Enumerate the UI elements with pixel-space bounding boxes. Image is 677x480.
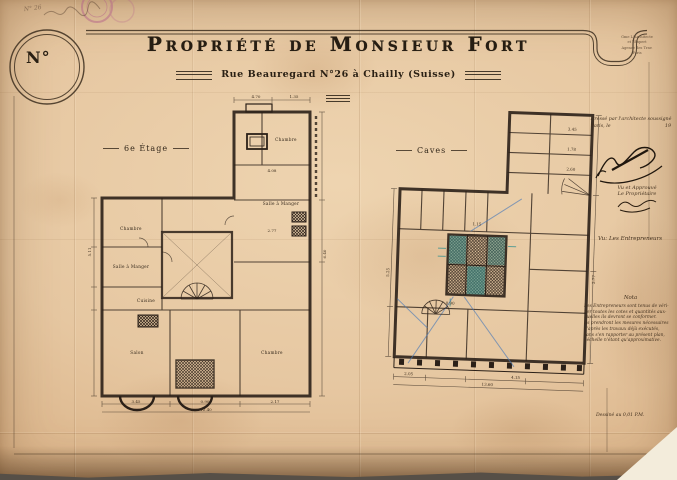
dim: 2.77 <box>268 228 277 233</box>
approved-annotation: Vu et Approuvé Le Propriétaire <box>603 186 671 198</box>
dim: 3.45 <box>132 399 141 404</box>
dim: 13.60 <box>481 382 493 387</box>
scanned-plan-sheet: Chambre Salle à Manger Cuisine Chambre S… <box>0 0 677 480</box>
pencil-inscription-squiggle <box>44 2 100 16</box>
dim: 0.90 <box>201 399 210 404</box>
room-label: Salle à Manger <box>113 264 150 269</box>
room-label: Chambre <box>275 137 297 142</box>
sheet-title: Propriété de Monsieur Fort <box>0 33 677 56</box>
scale-note: Dessiné au 0,01 P.M. <box>596 413 644 418</box>
nota-block: Nota Les Entrepreneurs sont tenus de vér… <box>584 295 677 344</box>
fan-stair-icon <box>562 178 591 195</box>
dim: 6.40 <box>322 249 327 258</box>
dim: 2.60 <box>566 167 576 172</box>
dash-ornament <box>451 150 467 151</box>
architect-stamp: Gme L'Architecte et l'Expert Agence des … <box>609 35 665 57</box>
plan-label-text: 6e Étage <box>124 144 168 153</box>
plan-label-caves: Caves <box>396 146 467 155</box>
drafted-place: Paris, le <box>591 124 611 130</box>
dim: 2.05 <box>404 371 414 376</box>
dim: 1.35 <box>290 94 299 99</box>
floor-plan-6e-etage: Chambre Salle à Manger Cuisine Chambre S… <box>87 94 327 412</box>
bottom-shadow <box>0 446 677 480</box>
drafted-line1: Dressé par l'architecte soussigné <box>587 117 675 123</box>
contractors-heading: Vu: Les Entrepreneurs <box>598 236 662 242</box>
dash-ornament <box>103 148 119 149</box>
plan-label-text: Caves <box>417 146 446 155</box>
central-core <box>446 234 506 296</box>
drafted-annotation: Dressé par l'architecte soussigné Paris,… <box>587 117 675 129</box>
dash-ornament <box>173 148 189 149</box>
dim: 4.15 <box>511 375 521 380</box>
dim: 1.78 <box>567 147 577 152</box>
dim: 2.77 <box>591 275 596 285</box>
dim: 1.15 <box>472 221 482 226</box>
nota-line: Les Entrepreneurs sont tenus de véri- <box>584 304 677 310</box>
sheet-subtitle-row: Rue Beauregard N°26 à Chailly (Suisse) <box>0 70 677 81</box>
triple-rule-ornament <box>176 71 212 80</box>
dim: 5.11 <box>87 248 92 257</box>
dim: 4.08 <box>268 168 277 173</box>
dim: 3.45 <box>568 127 578 132</box>
plan-label-6e-etage: 6e Étage <box>103 144 189 153</box>
room-label: Salon <box>130 350 143 355</box>
dim: 2.17 <box>271 399 280 404</box>
dim: 12.40 <box>200 407 212 412</box>
room-label: Salle à Manger <box>263 201 300 206</box>
spiral-stair-icon <box>181 283 213 299</box>
nota-title: Nota <box>584 295 677 302</box>
drafted-year: 19 <box>665 124 671 130</box>
nota-line: l'échelle n'étant qu'approximative. <box>584 338 677 344</box>
room-label: Cuisine <box>137 298 155 303</box>
room-label: Chambre <box>120 226 142 231</box>
stamp-line: Paris <box>609 51 665 56</box>
dash-ornament <box>396 150 412 151</box>
dim: 4.70 <box>252 94 261 99</box>
room-label: Chambre <box>261 350 283 355</box>
owner-signature <box>618 200 656 212</box>
dim: 5.25 <box>385 267 390 277</box>
approved-line2: Le Propriétaire <box>603 192 671 198</box>
triple-rule-ornament <box>465 71 501 80</box>
architect-signature <box>596 148 662 184</box>
dim: 0.90 <box>446 300 456 305</box>
center-rule-ornament <box>326 95 350 102</box>
sheet-subtitle: Rue Beauregard N°26 à Chailly (Suisse) <box>221 70 456 81</box>
